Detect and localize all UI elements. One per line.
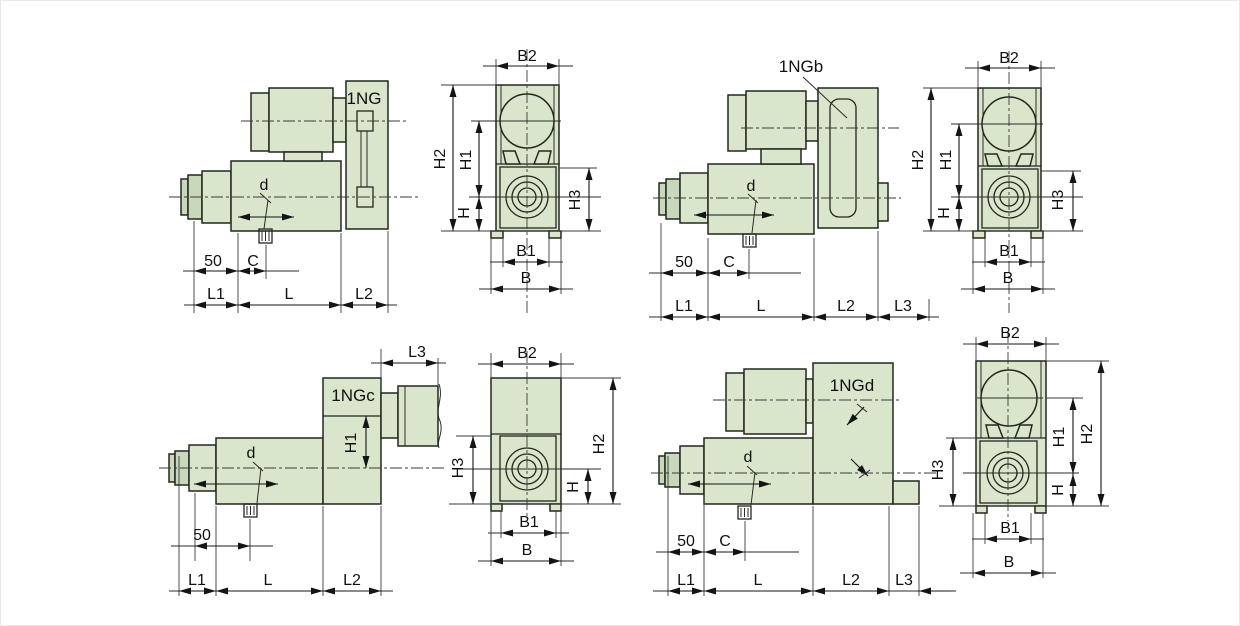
dim-label-b2: B2 [517, 48, 537, 65]
dim-label-h: H [565, 481, 582, 493]
valve-body [704, 438, 813, 504]
coil-block [746, 91, 806, 149]
flange-foot-right [1035, 506, 1046, 513]
dim-label-c: C [719, 533, 731, 550]
dim-label-l2: L2 [842, 572, 860, 589]
dim-label-h3: H3 [567, 190, 584, 211]
valve-body [216, 438, 323, 504]
dim-label-b: B [1003, 270, 1014, 287]
flange-foot-left [491, 231, 503, 238]
view-1ngc-side: 1NGc L3 H1 d 50 L1 L L2 [159, 344, 446, 596]
dim-label-b: B [1004, 554, 1015, 571]
dim-label-b1: B1 [999, 243, 1019, 260]
dim-label-d: d [744, 449, 753, 466]
part-shapes [973, 88, 1043, 238]
dim-label-d: d [247, 445, 256, 462]
dim-label-h3: H3 [930, 460, 947, 481]
model-label: 1NGd [830, 376, 874, 395]
dim-label-l: L [285, 286, 294, 303]
view-1ngd-side: 1NGd d 50 C L1 L L2 L3 [651, 363, 956, 596]
coil-block [269, 88, 333, 152]
coil-step [806, 379, 813, 423]
dim-label-l3: L3 [895, 572, 913, 589]
dim-label-l3: L3 [408, 344, 426, 361]
dim-label-b2: B2 [999, 50, 1019, 67]
part-shapes [659, 363, 919, 519]
dim-label-c: C [247, 253, 259, 270]
part-shapes [491, 85, 561, 238]
dim-label-h2: H2 [591, 434, 608, 455]
dim-label-h3: H3 [1050, 190, 1067, 211]
dim-label-d: d [260, 177, 269, 194]
cable-gland-neck [381, 393, 398, 438]
coil-neck [284, 152, 322, 161]
coil-step [333, 98, 346, 142]
model-label: 1NGb [779, 57, 823, 76]
part-shapes [169, 378, 441, 517]
dim-label-l: L [757, 298, 766, 315]
dim-label-d: d [747, 178, 756, 195]
plug-nut [665, 453, 680, 487]
dim-label-l2: L2 [837, 298, 855, 315]
dim-label-50: 50 [193, 527, 211, 544]
dim-label-b1: B1 [519, 514, 539, 531]
technical-drawing: 1NG d 50 C L1 L L2 [1, 1, 1240, 626]
flange-foot-right [550, 504, 561, 511]
view-1ngb-front: B2 H2 H1 H H3 B1 B [910, 50, 1083, 313]
coil-block [744, 369, 806, 434]
view-1ng-side: 1NG d 50 C L1 L L2 [169, 81, 419, 313]
part-shapes [491, 378, 561, 511]
side-tab [878, 183, 888, 221]
shaft-tip [659, 456, 665, 484]
flange-foot-right [1031, 231, 1043, 238]
dim-label-b2: B2 [517, 345, 537, 362]
shaft-step [680, 446, 704, 494]
dim-label-h3: H3 [450, 458, 467, 479]
dim-label-h2: H2 [1079, 424, 1096, 445]
valve-body [231, 161, 341, 231]
dim-label-l1: L1 [675, 298, 693, 315]
dim-label-l1: L1 [188, 572, 206, 589]
flange-foot-left [976, 506, 987, 513]
view-1ngd-front: B2 H3 H1 H2 H B1 B [930, 325, 1109, 578]
flange-foot-right [549, 231, 561, 238]
cable-gland-body [398, 386, 438, 446]
dim-label-h1: H1 [458, 150, 475, 171]
terminal-step [893, 481, 919, 504]
part-shapes [976, 361, 1046, 513]
dim-label-b: B [521, 270, 532, 287]
view-1ngc-front: B2 H3 H2 H B1 B [449, 345, 621, 566]
coil-neck [761, 149, 801, 164]
valve-body [708, 164, 814, 234]
dim-label-h: H [936, 207, 953, 219]
dim-label-h: H [1050, 484, 1067, 496]
shaft-tip [659, 183, 666, 215]
dim-label-l3: L3 [894, 298, 912, 315]
dim-label-50: 50 [675, 254, 693, 271]
dim-label-50: 50 [204, 253, 222, 270]
model-label: 1NG [347, 89, 382, 108]
dim-label-50: 50 [677, 533, 695, 550]
dim-label-l: L [754, 572, 763, 589]
model-label: 1NGc [331, 386, 375, 405]
dim-label-b1: B1 [516, 243, 536, 260]
dim-label-h2: H2 [432, 149, 449, 170]
mounting-plate [818, 88, 878, 228]
dim-label-h2: H2 [910, 150, 927, 171]
dim-label-h1: H1 [1051, 427, 1068, 448]
coil-cap [726, 373, 744, 431]
view-1ng-front: B2 H2 H1 H H3 B1 B [432, 48, 601, 313]
dim-label-b1: B1 [1000, 520, 1020, 537]
dim-label-l1: L1 [207, 286, 225, 303]
view-1ngb-side: 1NGb d 50 C L1 L L2 L3 [649, 57, 939, 321]
plug-nut [666, 179, 680, 219]
valve-dimension-drawing-page: 1NG d 50 C L1 L L2 [0, 0, 1240, 626]
dim-label-h1: H1 [938, 150, 955, 171]
flange-foot-left [973, 231, 985, 238]
dim-label-l2: L2 [355, 286, 373, 303]
housing [491, 378, 561, 504]
dim-label-c: C [723, 254, 735, 271]
dim-label-b: B [522, 542, 533, 559]
dim-label-b2: B2 [1000, 325, 1020, 342]
part-shapes [659, 77, 888, 247]
dim-label-l: L [264, 572, 273, 589]
coil-step [806, 101, 818, 141]
dim-label-h1: H1 [343, 433, 360, 454]
flange-foot-left [491, 504, 502, 511]
coil-cap [728, 95, 746, 151]
dim-label-l2: L2 [343, 572, 361, 589]
dim-label-l1: L1 [677, 572, 695, 589]
dim-label-h: H [456, 207, 473, 219]
coil-cap [251, 93, 269, 151]
